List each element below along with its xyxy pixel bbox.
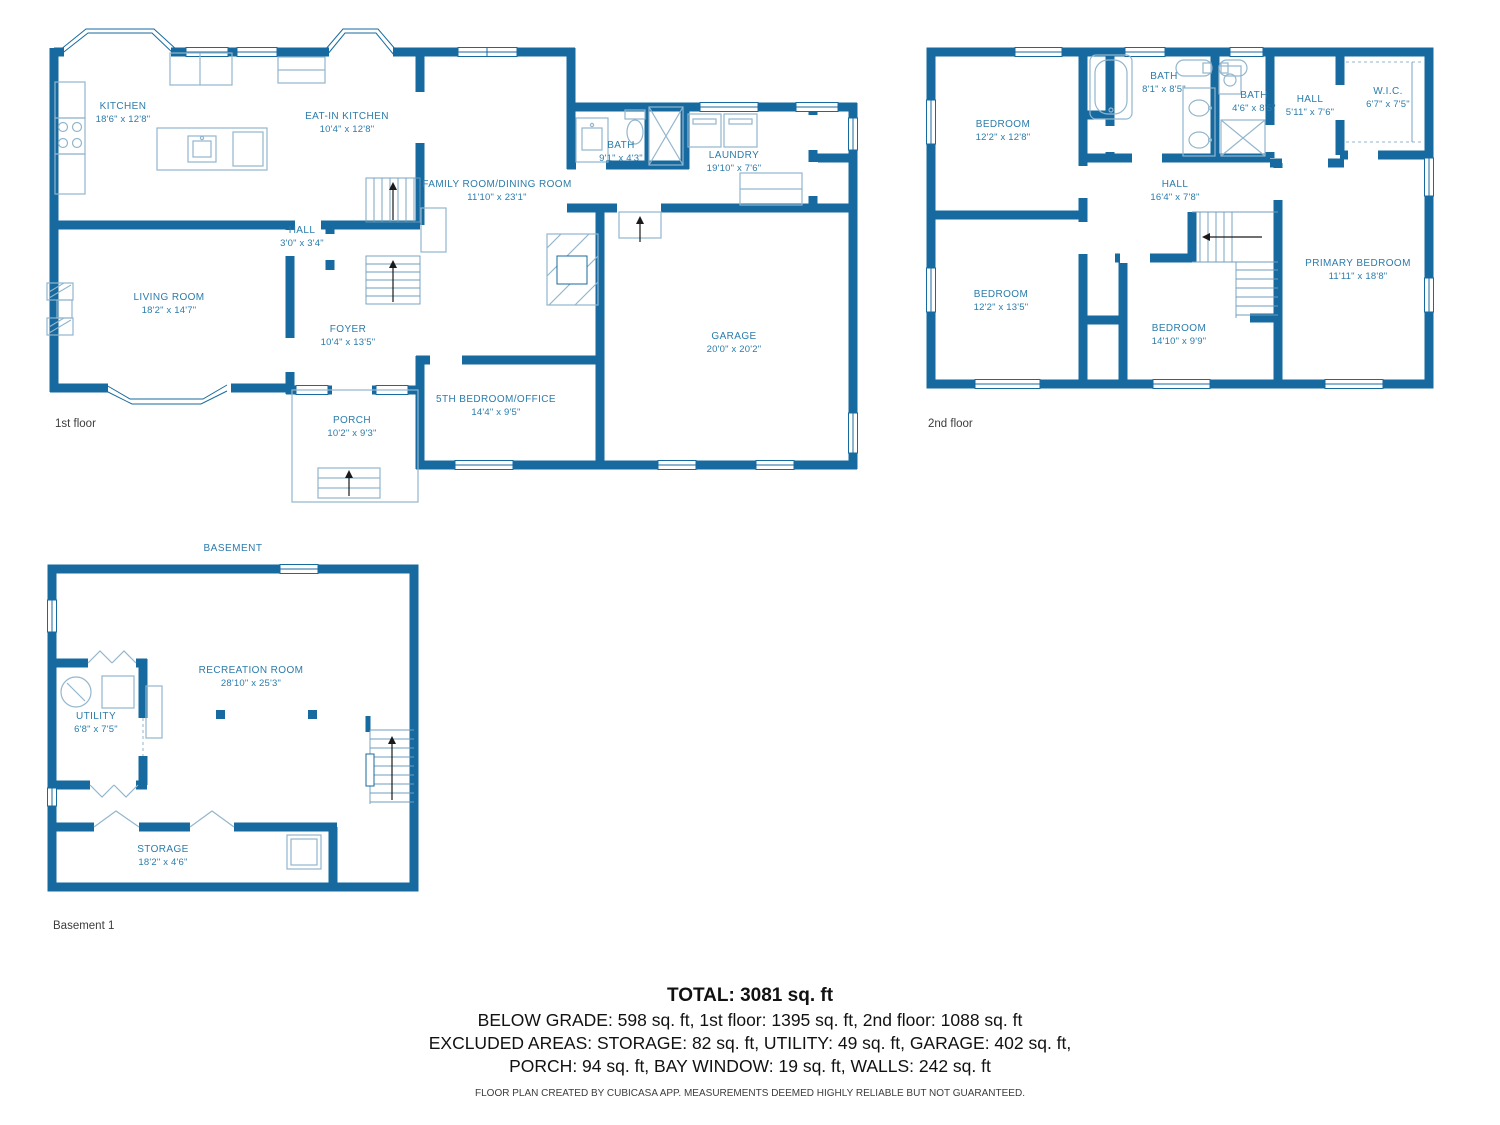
room-label-living-room: LIVING ROOM 18'2" x 14'7" bbox=[89, 291, 249, 317]
room-label-wic: W.I.C. 6'7" x 7'5" bbox=[1308, 85, 1468, 111]
summary-disclaimer: FLOOR PLAN CREATED BY CUBICASA APP. MEAS… bbox=[0, 1087, 1500, 1101]
basement-plan bbox=[40, 540, 460, 940]
room-label-kitchen: KITCHEN 18'6" x 12'8" bbox=[43, 100, 203, 126]
floor-label-2nd: 2nd floor bbox=[928, 418, 973, 430]
area-summary: TOTAL: 3081 sq. ft BELOW GRADE: 598 sq. … bbox=[0, 983, 1500, 1101]
room-label-bedroom-tl: BEDROOM 12'2" x 12'8" bbox=[923, 118, 1083, 144]
room-label-hall-1f: HALL 3'0" x 3'4" bbox=[222, 224, 382, 250]
basement-title: BASEMENT bbox=[153, 543, 313, 554]
room-label-family-room: FAMILY ROOM/DINING ROOM 11'10" x 23'1" bbox=[417, 178, 577, 204]
room-label-primary-bedroom: PRIMARY BEDROOM 11'11" x 18'8" bbox=[1278, 257, 1438, 283]
summary-total: TOTAL: 3081 sq. ft bbox=[0, 983, 1500, 1009]
room-label-bedroom-bm: BEDROOM 14'10" x 9'9" bbox=[1099, 322, 1259, 348]
first-floor-plan bbox=[40, 10, 870, 510]
floor-label-basement: Basement 1 bbox=[53, 920, 114, 932]
porch-outline bbox=[292, 390, 418, 502]
room-label-laundry: LAUNDRY 19'10" x 7'6" bbox=[654, 149, 814, 175]
dryer-icon bbox=[724, 114, 757, 147]
garage-door-icon bbox=[619, 212, 661, 242]
stairs-icon bbox=[366, 730, 414, 804]
room-label-storage: STORAGE 18'2" x 4'6" bbox=[83, 843, 243, 869]
room-label-utility: UTILITY 6'8" x 7'5" bbox=[16, 710, 176, 736]
stairs-icon bbox=[1192, 212, 1278, 318]
room-label-hall-2f: HALL 16'4" x 7'8" bbox=[1095, 178, 1255, 204]
room-label-foyer: FOYER 10'4" x 13'5" bbox=[268, 323, 428, 349]
shower-icon bbox=[1221, 120, 1265, 156]
water-heater-icon bbox=[61, 677, 91, 707]
kitchen-island bbox=[157, 128, 267, 170]
room-label-recreation-room: RECREATION ROOM 28'10" x 25'3" bbox=[171, 664, 331, 690]
summary-line-grade: BELOW GRADE: 598 sq. ft, 1st floor: 1395… bbox=[0, 1009, 1500, 1032]
support-posts bbox=[216, 710, 317, 719]
room-label-5th-bedroom: 5TH BEDROOM/OFFICE 14'4" x 9'5" bbox=[416, 393, 576, 419]
room-label-garage: GARAGE 20'0" x 20'2" bbox=[654, 330, 814, 356]
room-label-bedroom-bl: BEDROOM 12'2" x 13'5" bbox=[921, 288, 1081, 314]
room-label-porch: PORCH 10'2" x 9'3" bbox=[272, 414, 432, 440]
summary-line-porch: PORCH: 94 sq. ft, BAY WINDOW: 19 sq. ft,… bbox=[0, 1055, 1500, 1078]
porch-steps-icon bbox=[318, 468, 380, 498]
floor-plan-page: KITCHEN 18'6" x 12'8" EAT-IN KITCHEN 10'… bbox=[0, 0, 1500, 1125]
summary-line-excluded: EXCLUDED AREAS: STORAGE: 82 sq. ft, UTIL… bbox=[0, 1032, 1500, 1055]
floor-label-1st: 1st floor bbox=[55, 418, 96, 430]
room-label-eat-in-kitchen: EAT-IN KITCHEN 10'4" x 12'8" bbox=[267, 110, 427, 136]
fireplace-icon bbox=[547, 234, 598, 305]
storage-fixtures bbox=[287, 835, 321, 869]
